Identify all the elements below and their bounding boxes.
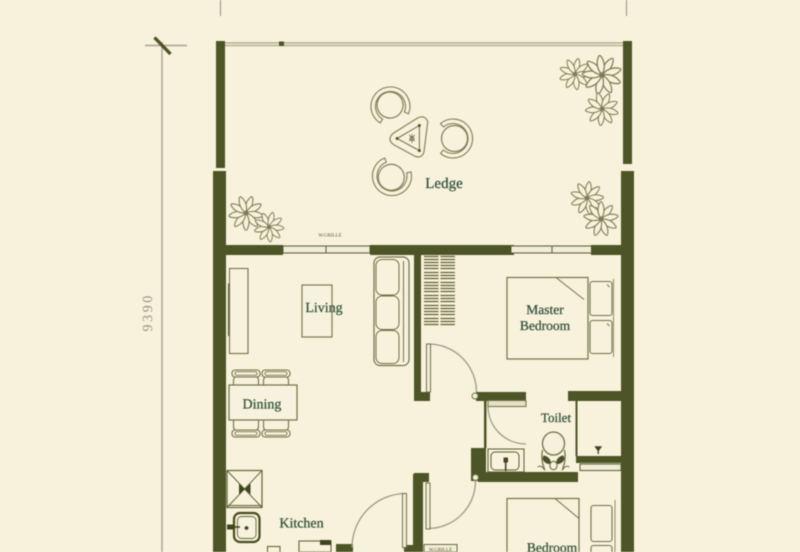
svg-text:Kitchen: Kitchen <box>279 517 323 532</box>
svg-text:Ledge: Ledge <box>425 176 463 192</box>
svg-text:Bedroom: Bedroom <box>527 540 578 552</box>
svg-text:Bedroom: Bedroom <box>520 318 571 333</box>
svg-text:Toilet: Toilet <box>541 410 572 425</box>
svg-text:Master: Master <box>526 302 564 317</box>
svg-text:Living: Living <box>305 301 342 316</box>
svg-text:W.GRILLE: W.GRILLE <box>429 547 452 552</box>
svg-text:Dining: Dining <box>243 398 282 413</box>
svg-text:W.GRILLE: W.GRILLE <box>318 233 341 239</box>
svg-text:9390: 9390 <box>141 293 156 331</box>
